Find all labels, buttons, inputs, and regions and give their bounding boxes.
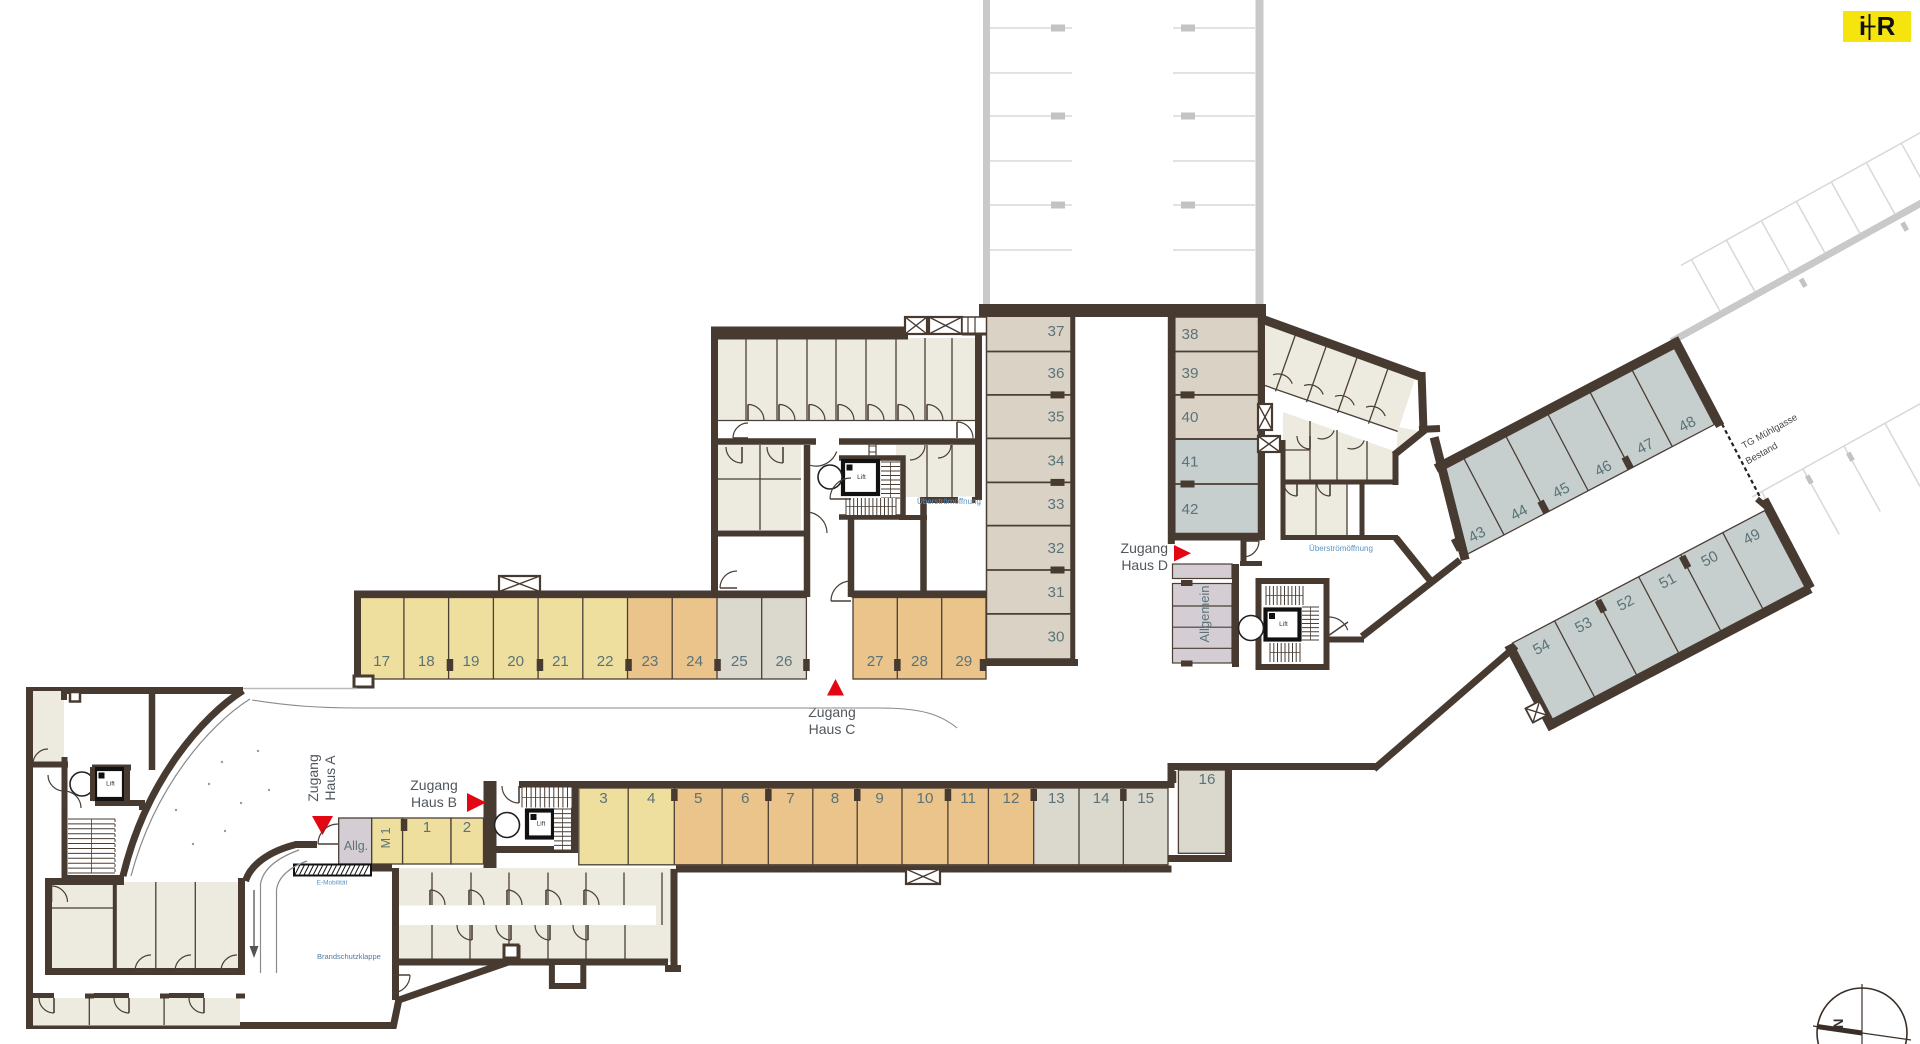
svg-text:11: 11 [960, 790, 976, 807]
svg-text:35: 35 [1048, 409, 1065, 426]
svg-text:Allgemein: Allgemein [1197, 585, 1212, 642]
svg-text:13: 13 [1048, 790, 1065, 807]
svg-text:Haus A: Haus A [322, 755, 338, 801]
svg-text:39: 39 [1182, 365, 1199, 382]
svg-text:Haus B: Haus B [411, 794, 457, 810]
svg-text:Zugang: Zugang [1121, 540, 1168, 556]
svg-text:24: 24 [686, 653, 703, 670]
svg-text:40: 40 [1182, 409, 1199, 426]
svg-text:Lift: Lift [857, 474, 866, 481]
svg-text:8: 8 [831, 790, 839, 807]
svg-text:34: 34 [1048, 452, 1065, 469]
svg-text:N: N [1831, 1019, 1846, 1029]
svg-text:15: 15 [1137, 790, 1154, 807]
svg-text:22: 22 [597, 653, 614, 670]
svg-text:28: 28 [911, 653, 928, 670]
svg-text:M 1: M 1 [379, 828, 393, 849]
svg-text:1: 1 [423, 819, 431, 836]
svg-text:9: 9 [875, 790, 883, 807]
svg-text:37: 37 [1048, 323, 1065, 340]
svg-text:17: 17 [373, 653, 390, 670]
svg-text:33: 33 [1048, 496, 1065, 513]
svg-text:31: 31 [1048, 584, 1065, 601]
svg-text:20: 20 [507, 653, 524, 670]
svg-text:R: R [1877, 11, 1896, 41]
svg-text:Überströmöffnung: Überströmöffnung [1309, 544, 1373, 553]
svg-text:5: 5 [694, 790, 702, 807]
svg-text:36: 36 [1048, 365, 1065, 382]
svg-text:27: 27 [867, 653, 884, 670]
svg-text:16: 16 [1199, 771, 1216, 788]
svg-text:10: 10 [917, 790, 934, 807]
svg-text:Allg.: Allg. [344, 839, 368, 853]
svg-text:7: 7 [786, 790, 794, 807]
svg-text:30: 30 [1048, 629, 1065, 646]
svg-text:4: 4 [647, 790, 655, 807]
svg-text:26: 26 [776, 653, 793, 670]
svg-text:32: 32 [1048, 540, 1065, 557]
svg-text:38: 38 [1182, 326, 1199, 343]
svg-text:Lift: Lift [537, 821, 546, 828]
svg-text:12: 12 [1003, 790, 1020, 807]
svg-text:E-Mobilität: E-Mobilität [317, 880, 348, 887]
svg-text:41: 41 [1182, 454, 1199, 471]
svg-text:Zugang: Zugang [808, 704, 855, 720]
svg-text:18: 18 [418, 653, 435, 670]
svg-text:42: 42 [1182, 501, 1199, 518]
svg-text:Brandschutzklappe: Brandschutzklappe [317, 952, 381, 961]
svg-text:Haus C: Haus C [809, 721, 856, 737]
svg-text:Zugang: Zugang [305, 754, 321, 801]
svg-text:Überströmöffnung: Überströmöffnung [917, 497, 981, 506]
svg-text:14: 14 [1093, 790, 1110, 807]
svg-text:23: 23 [641, 653, 658, 670]
svg-text:21: 21 [552, 653, 569, 670]
svg-text:6: 6 [741, 790, 749, 807]
svg-text:19: 19 [463, 653, 480, 670]
svg-text:Lift: Lift [1279, 621, 1288, 628]
svg-text:25: 25 [731, 653, 748, 670]
svg-text:2: 2 [463, 819, 471, 836]
svg-text:Lift: Lift [106, 781, 115, 788]
svg-text:Zugang: Zugang [410, 777, 457, 793]
svg-text:Haus D: Haus D [1121, 557, 1168, 573]
svg-text:3: 3 [599, 790, 607, 807]
svg-text:29: 29 [955, 653, 972, 670]
